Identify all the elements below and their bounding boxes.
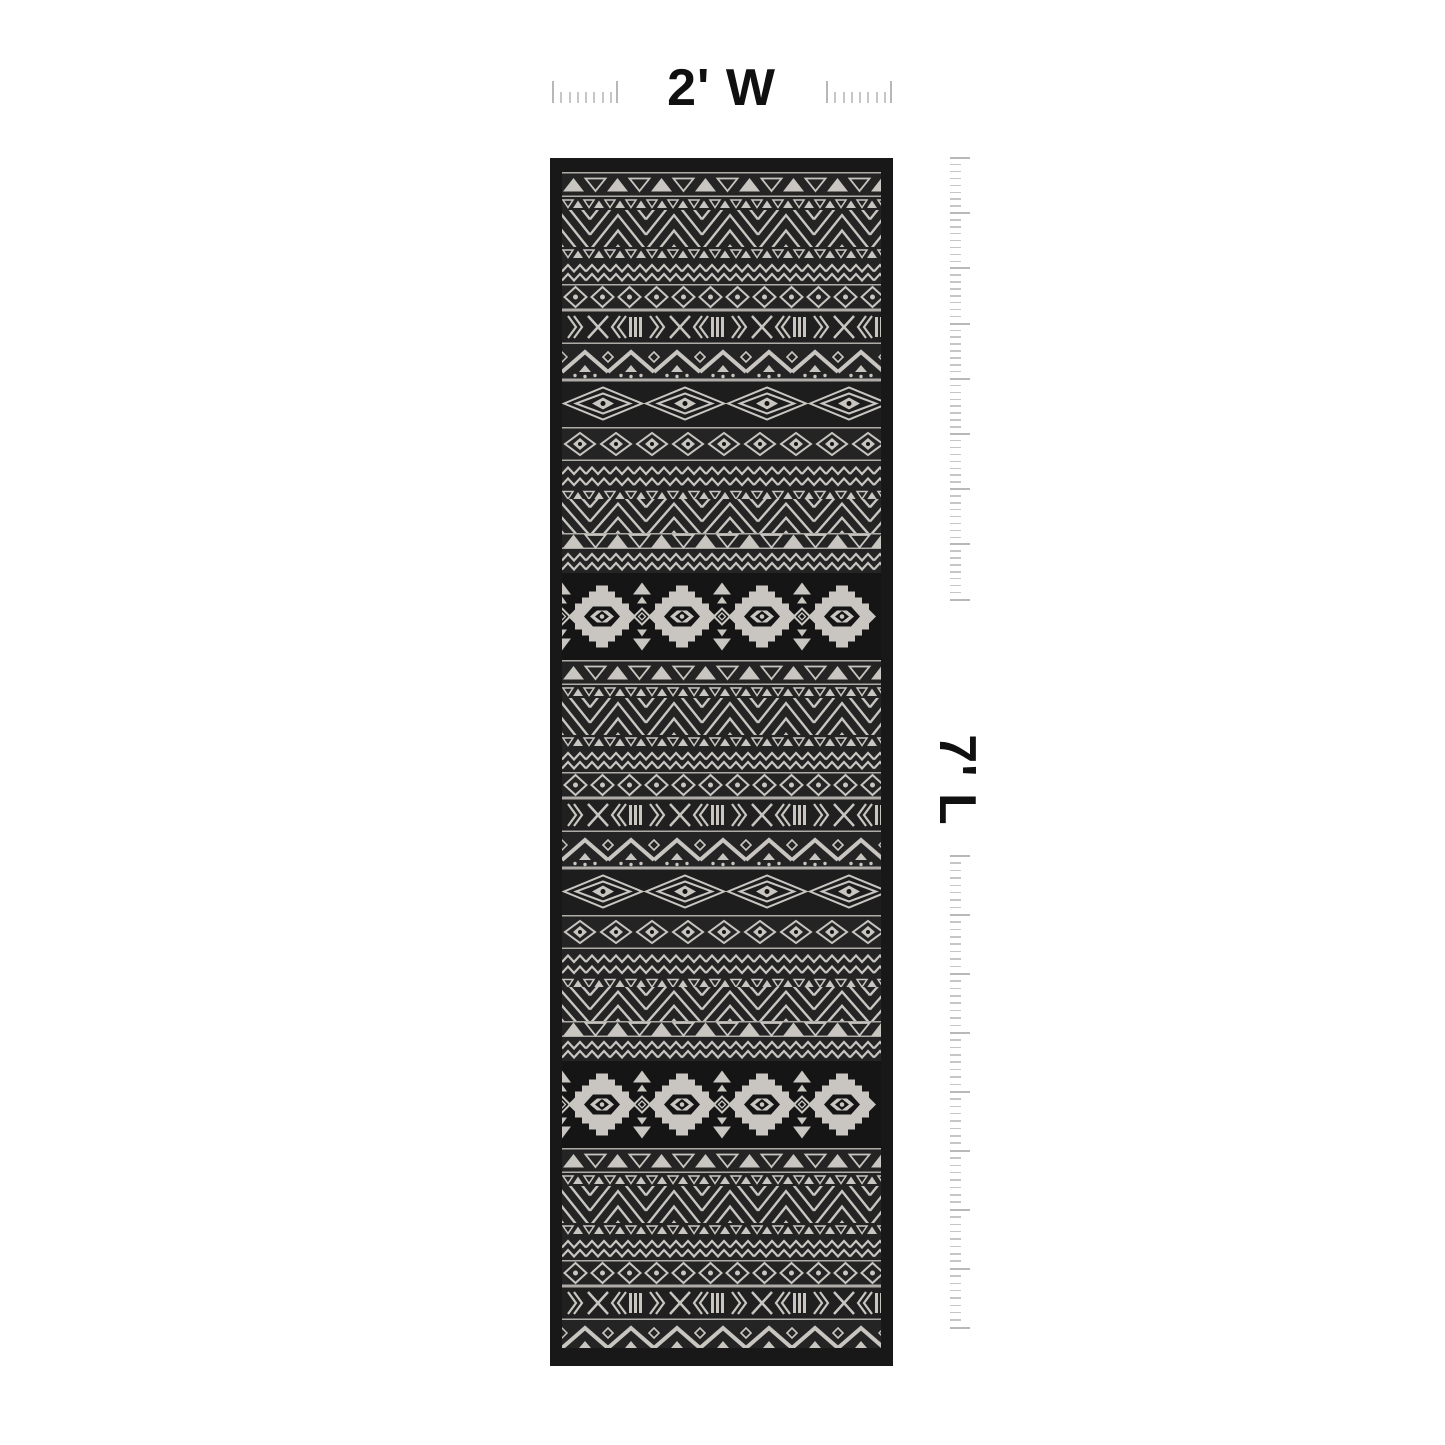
ruler-tick [950,995,961,997]
ruler-tick [950,1260,961,1262]
ruler-tick [950,1327,970,1329]
top-ruler-left-segment [552,81,618,103]
ruler-tick [950,530,961,532]
ruler-tick [950,958,961,960]
ruler-tick [950,178,961,180]
ruler-tick [950,870,961,872]
ruler-tick [950,509,961,511]
ruler-tick [950,247,961,249]
ruler-tick [950,1165,961,1167]
ruler-tick [884,92,886,103]
ruler-tick [950,1017,961,1019]
ruler-tick [950,1157,961,1159]
ruler-tick [950,516,961,518]
ruler-tick [950,316,961,318]
ruler-tick [950,392,961,394]
ruler-tick [950,1187,961,1189]
ruler-tick [950,1179,961,1181]
ruler-tick [950,571,961,573]
ruler-tick [950,468,961,470]
ruler-tick [950,1150,970,1152]
ruler-tick [950,1283,961,1285]
ruler-tick [950,330,961,332]
ruler-tick [950,1238,961,1240]
ruler-tick [950,288,961,290]
ruler-tick [950,336,961,338]
ruler-tick [950,1209,970,1211]
ruler-tick [950,1098,961,1100]
ruler-tick [569,92,571,103]
ruler-tick [950,1120,961,1122]
ruler-tick [950,936,961,938]
ruler-tick [876,92,878,103]
ruler-tick [851,92,853,103]
ruler-tick [950,1231,961,1233]
ruler-tick [950,1010,961,1012]
ruler-tick [950,1076,961,1078]
ruler-tick [560,92,562,103]
ruler-tick [950,1069,961,1071]
ruler-tick [890,81,892,103]
ruler-tick [950,1091,970,1093]
ruler-tick [950,1224,961,1226]
ruler-tick [950,1194,961,1196]
ruler-tick [826,81,828,103]
ruler-tick [950,1106,961,1108]
ruler-tick [585,92,587,103]
product-dimensions-image: 2' W 7' L [0,0,1445,1445]
ruler-tick [950,1054,961,1056]
ruler-tick [950,1032,970,1034]
ruler-tick [950,495,961,497]
ruler-tick [950,1061,961,1063]
ruler-tick [950,599,970,601]
rug-image [550,158,893,1366]
ruler-tick [950,1135,961,1137]
ruler-tick [950,543,970,545]
ruler-tick [950,921,961,923]
ruler-tick [950,426,961,428]
ruler-tick [950,1172,961,1174]
ruler-tick [950,219,961,221]
ruler-tick [950,440,961,442]
ruler-tick [950,877,961,879]
ruler-tick [950,951,961,953]
ruler-tick [950,157,970,159]
ruler-tick [950,1142,961,1144]
ruler-tick [950,943,961,945]
ruler-tick [950,1246,961,1248]
ruler-tick [950,585,961,587]
ruler-tick [610,92,612,103]
ruler-tick [950,1047,961,1049]
ruler-tick [950,1297,961,1299]
ruler-tick [950,171,961,173]
ruler-tick [950,1025,961,1027]
ruler-tick [950,205,961,207]
ruler-tick [950,907,961,909]
ruler-tick [950,1319,961,1321]
ruler-tick [950,537,961,539]
ruler-tick [950,419,961,421]
ruler-tick [950,1253,961,1255]
ruler-tick [950,385,961,387]
ruler-tick [834,92,836,103]
ruler-tick [950,164,961,166]
side-ruler-lower-segment [950,855,970,1329]
ruler-tick [950,892,961,894]
ruler-tick [593,92,595,103]
ruler-tick [950,564,961,566]
ruler-tick [950,1002,961,1004]
ruler-tick [843,92,845,103]
ruler-tick [950,481,961,483]
ruler-tick [950,343,961,345]
ruler-tick [950,261,961,263]
ruler-tick [950,357,961,359]
ruler-tick [950,433,970,435]
ruler-tick [950,973,970,975]
ruler-tick [950,474,961,476]
ruler-tick [950,378,970,380]
ruler-tick [950,323,970,325]
ruler-tick [950,240,961,242]
ruler-tick [950,502,961,504]
ruler-tick [950,267,970,269]
ruler-tick [867,92,869,103]
ruler-tick [950,399,961,401]
ruler-tick [950,1084,961,1086]
ruler-tick [950,412,961,414]
ruler-tick [950,1201,961,1203]
ruler-tick [950,1312,961,1314]
ruler-tick [950,855,970,857]
top-ruler-right-segment [826,81,892,103]
ruler-tick [950,1305,961,1307]
ruler-tick [950,364,961,366]
ruler-tick [950,862,961,864]
ruler-tick [552,81,554,103]
ruler-tick [950,295,961,297]
ruler-tick [950,212,970,214]
ruler-tick [950,1275,961,1277]
ruler-tick [950,557,961,559]
ruler-tick [950,350,961,352]
ruler-tick [950,1113,961,1115]
ruler-tick [950,488,970,490]
ruler-tick [950,1128,961,1130]
ruler-tick [950,914,970,916]
ruler-tick [950,1268,970,1270]
length-label: 7' L [927,734,987,826]
ruler-tick [859,92,861,103]
ruler-tick [950,550,961,552]
rug-field [550,169,893,1366]
ruler-tick [950,198,961,200]
ruler-tick [950,592,961,594]
ruler-tick [950,461,961,463]
ruler-tick [602,92,604,103]
ruler-tick [950,274,961,276]
ruler-tick [950,192,961,194]
ruler-tick [950,578,961,580]
ruler-tick [950,966,961,968]
ruler-tick [577,92,579,103]
ruler-tick [950,1290,961,1292]
ruler-tick [950,281,961,283]
ruler-tick [950,254,961,256]
ruler-tick [950,226,961,228]
ruler-tick [950,988,961,990]
ruler-tick [950,185,961,187]
ruler-tick [950,233,961,235]
ruler-tick [950,454,961,456]
ruler-tick [950,302,961,304]
ruler-tick [950,1039,961,1041]
ruler-tick [950,309,961,311]
ruler-tick [950,405,961,407]
ruler-tick [950,885,961,887]
ruler-tick [950,371,961,373]
ruler-tick [950,899,961,901]
ruler-tick [616,81,618,103]
ruler-tick [950,929,961,931]
ruler-tick [950,523,961,525]
ruler-tick [950,1216,961,1218]
ruler-tick [950,980,961,982]
ruler-tick [950,447,961,449]
side-ruler-upper-segment [950,157,970,601]
